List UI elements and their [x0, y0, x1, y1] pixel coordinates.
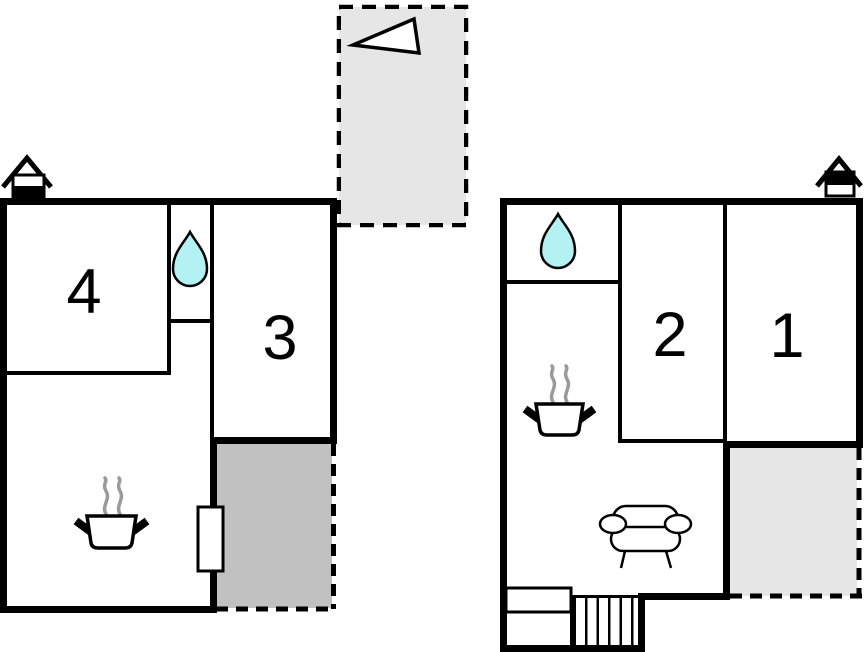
cooking-pot-icon: [76, 516, 147, 548]
wall-left: [500, 198, 507, 652]
floor-plan-left: 4 3: [0, 158, 337, 613]
floor-plan-page: 4 3: [0, 0, 864, 652]
wall-left: [0, 198, 7, 613]
stair-tread: [608, 598, 611, 645]
wall-bottom: [500, 645, 645, 652]
stair-tread: [585, 598, 588, 645]
window: [506, 588, 571, 612]
terrace-door: [198, 507, 223, 571]
steam-lines: [552, 366, 569, 402]
north-annex-box: [339, 7, 466, 225]
terrace-dark-area: [213, 441, 332, 608]
stair-tread: [631, 598, 634, 645]
wall-top: [500, 198, 863, 205]
wall-top: [0, 198, 337, 205]
floor-plan-right: 2 1: [500, 159, 863, 652]
chimney-icon-right: [817, 159, 861, 196]
bathroom-bottom-wall: [167, 319, 214, 323]
room-2-label: 2: [652, 300, 687, 370]
room3-left-wall: [210, 205, 214, 437]
sofa-icon: [600, 506, 691, 568]
room2-left-wall: [618, 205, 622, 443]
room-4-label: 4: [66, 257, 101, 327]
stair-tread: [597, 598, 600, 645]
room-3-label: 3: [262, 303, 297, 373]
water-drop-icon: [541, 214, 575, 268]
steam-lines: [105, 478, 122, 514]
terrace-top-wall: [210, 437, 337, 444]
wall-bottom: [0, 606, 216, 613]
room2-bottom-wall: [618, 439, 727, 443]
stair-right-wall: [638, 597, 645, 652]
living-bottom-wall: [638, 593, 730, 600]
room1-bottom-wall: [723, 441, 863, 448]
room2-room1-divider: [723, 205, 727, 441]
water-drop-icon: [173, 232, 207, 286]
chimney-icon-left: [3, 158, 51, 199]
room4-right-wall: [167, 205, 171, 375]
wall-right: [330, 198, 337, 444]
terrace-left-wall: [723, 441, 730, 600]
stair-tread: [620, 598, 623, 645]
cooking-pot-icon: [525, 404, 594, 435]
room-1-label: 1: [769, 301, 804, 371]
terrace-light-area: [730, 448, 857, 596]
wall-right: [856, 198, 863, 448]
stairs: [570, 595, 638, 645]
bathroom-bottom-wall: [507, 280, 622, 284]
floor-plan-canvas: 4 3: [0, 0, 864, 652]
room4-bottom-wall: [0, 371, 171, 375]
